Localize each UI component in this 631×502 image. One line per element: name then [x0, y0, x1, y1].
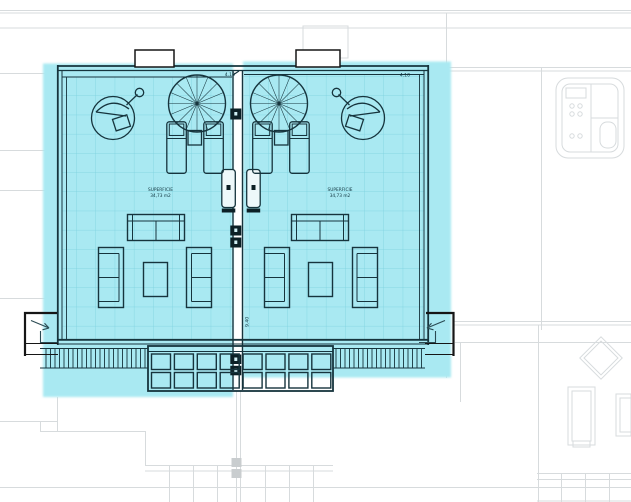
floor-plan-drawing: SUPERFICIE 34,73 m2 SUPERFICIE 34,73 m2 … — [0, 0, 631, 502]
area-label-right: SUPERFICIE — [328, 187, 353, 193]
floor-plan-canvas: SUPERFICIE 34,73 m2 SUPERFICIE 34,73 m2 … — [0, 0, 631, 502]
area-label-left: SUPERFICIE — [148, 187, 173, 193]
chimney-right — [296, 50, 340, 67]
dim-width-left: 4.10 — [225, 72, 235, 78]
area-value-right: 34,73 m2 — [330, 193, 351, 199]
parasol-icon — [169, 75, 226, 132]
dim-depth: 9.40 — [245, 317, 251, 327]
dim-width-right: 4.10 — [400, 73, 410, 79]
area-value-left: 34,73 m2 — [150, 193, 171, 199]
chimney-left — [135, 50, 174, 67]
